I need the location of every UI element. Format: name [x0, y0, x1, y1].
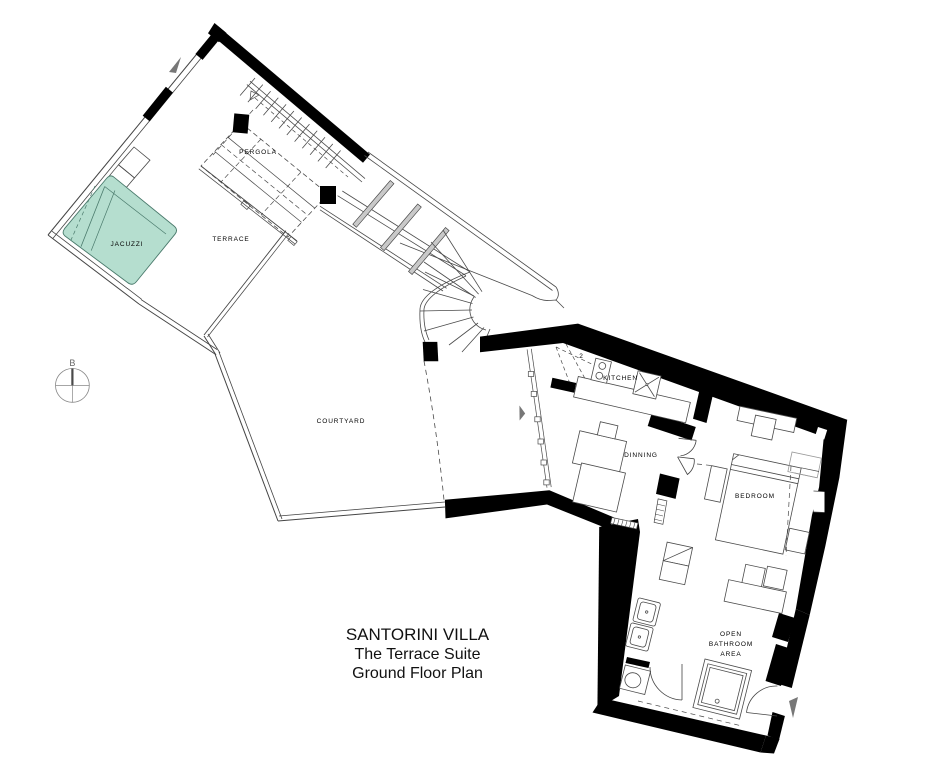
svg-text:BEDROOM: BEDROOM: [735, 493, 775, 500]
svg-text:BATHROOM: BATHROOM: [709, 641, 753, 648]
svg-text:KITCHEN: KITCHEN: [603, 375, 638, 382]
svg-text:COURTYARD: COURTYARD: [317, 418, 366, 425]
svg-text:DINNING: DINNING: [624, 452, 658, 459]
svg-text:TERRACE: TERRACE: [212, 236, 249, 243]
svg-text:SANTORINI VILLA: SANTORINI VILLA: [346, 625, 490, 644]
svg-text:PERGOLA: PERGOLA: [239, 149, 277, 156]
svg-text:Ground Floor Plan: Ground Floor Plan: [352, 665, 483, 682]
svg-text:AREA: AREA: [720, 651, 741, 658]
svg-text:B: B: [69, 358, 75, 368]
svg-text:OPEN: OPEN: [720, 631, 742, 638]
svg-text:JACUZZI: JACUZZI: [110, 241, 143, 248]
svg-text:2: 2: [579, 353, 583, 360]
svg-text:The Terrace Suite: The Terrace Suite: [355, 646, 481, 663]
